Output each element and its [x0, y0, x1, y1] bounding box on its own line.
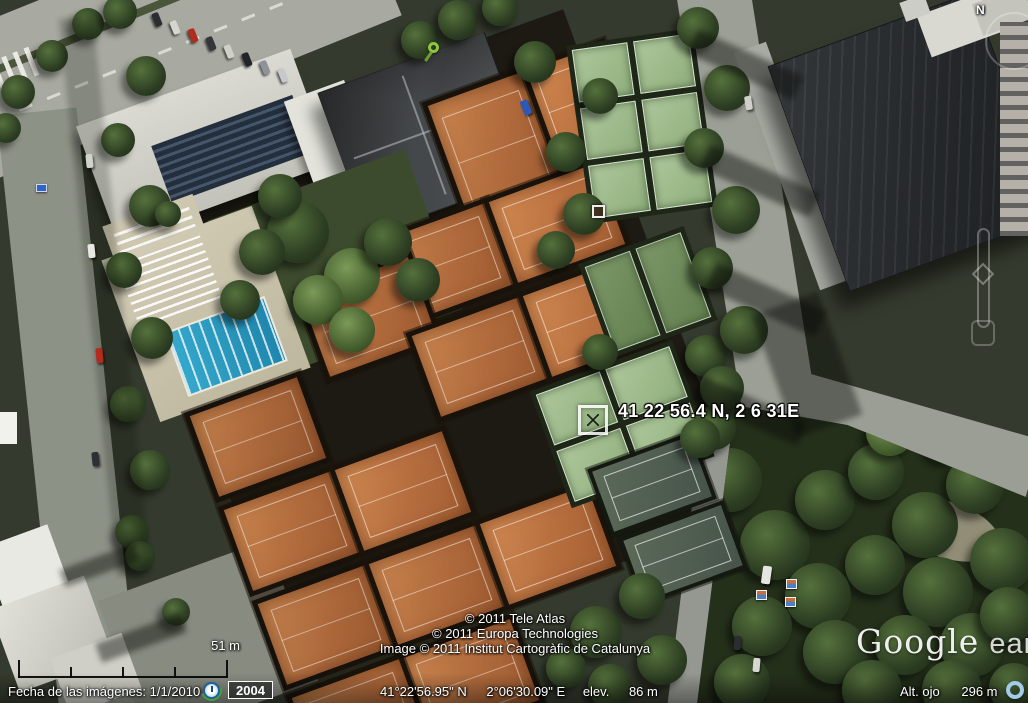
- zoom-out-button[interactable]: [971, 320, 995, 346]
- photo-icon[interactable]: [756, 590, 767, 600]
- placemark-coordinates-label: 41 22 56.4 N, 2 6 31E: [618, 401, 799, 422]
- imagery-date-label: Fecha de las imágenes: 1/1/2010: [8, 684, 200, 699]
- logo-earth: earth: [989, 628, 1028, 660]
- copyright-line: © 2011 Tele Atlas: [320, 611, 710, 626]
- eye-alt-label: Alt. ojo: [900, 684, 940, 699]
- eye-altitude: Alt. ojo 296 m: [900, 684, 998, 699]
- clock-hand: [211, 686, 213, 692]
- new-placemark-icon[interactable]: [578, 405, 608, 435]
- compass-north-label: N: [976, 3, 985, 17]
- cursor-latitude: 41°22'56.95" N: [380, 684, 467, 699]
- google-earth-logo: Googleearth: [856, 622, 1028, 661]
- zoom-slider-handle[interactable]: [972, 263, 995, 286]
- logo-google: Google: [856, 622, 979, 661]
- elevation-label: elev.: [583, 684, 610, 699]
- cursor-longitude: 2°06'30.09" E: [486, 684, 565, 699]
- eye-alt-value: 296 m: [961, 684, 997, 699]
- photo-icon[interactable]: [785, 597, 796, 607]
- cursor-coordinates: 41°22'56.95" N 2°06'30.09" E elev. 86 m: [380, 684, 658, 699]
- pushpin-stem: [424, 51, 433, 62]
- copyright-line: © 2011 Europa Technologies: [320, 626, 710, 641]
- photo-icon[interactable]: [786, 579, 797, 589]
- streaming-spinner-icon: [1006, 681, 1024, 699]
- building-small-white: [0, 412, 17, 444]
- google-earth-viewport[interactable]: 41 22 56.4 N, 2 6 31E N © 2011 Tele Atla…: [0, 0, 1028, 703]
- scale-label: 51 m: [211, 638, 240, 653]
- transit-icon[interactable]: [36, 184, 47, 192]
- time-slider-year[interactable]: 2004: [228, 681, 273, 699]
- placemark-star: [587, 414, 599, 426]
- time-slider-clock-icon[interactable]: [203, 682, 220, 699]
- square-placemark-icon[interactable]: [592, 205, 605, 218]
- copyright-attribution: © 2011 Tele Atlas © 2011 Europa Technolo…: [320, 611, 710, 656]
- green-pushpin-icon[interactable]: [422, 42, 440, 64]
- elevation-value: 86 m: [629, 684, 658, 699]
- copyright-line: Image © 2011 Institut Cartogràfic de Cat…: [320, 641, 710, 656]
